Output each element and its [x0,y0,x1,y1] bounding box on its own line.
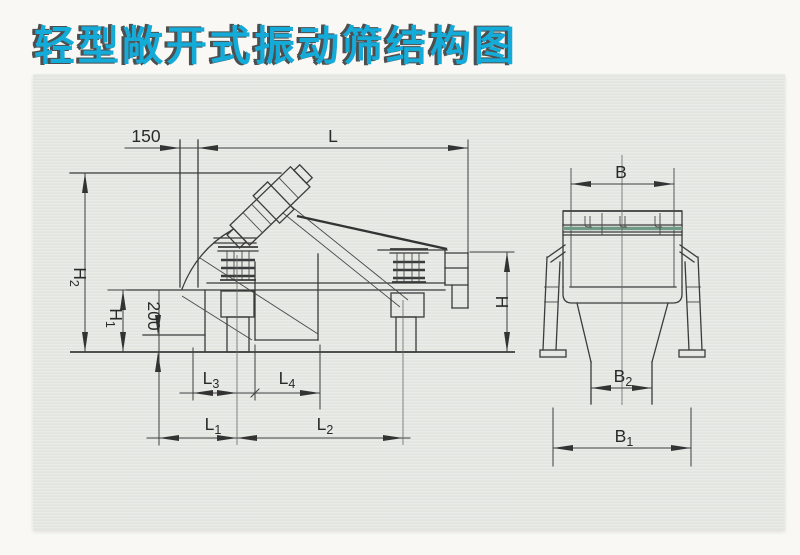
dim-label-B1: B1 [615,426,634,449]
dim-label-150: 150 [131,126,160,146]
dim-label-L4: L4 [279,368,296,391]
dim-label-L1: L1 [205,414,222,437]
side-view-springs [214,238,428,352]
dim-label-L3: L3 [203,368,220,391]
motor-assembly [220,158,319,255]
dimension-labels: 150 L H2 H1 200 H L3 L4 L1 L2 B B2 B1 [67,126,633,449]
side-view-dimensions [82,140,514,445]
dim-label-L: L [328,126,338,146]
dim-label-200: 200 [144,301,164,330]
structure-diagram: 150 L H2 H1 200 H L3 L4 L1 L2 B B2 B1 [0,0,800,555]
dim-label-H: H [492,296,512,309]
page: { "title": { "text": "轻型敞开式振动筛结构图", "col… [0,0,800,555]
side-view-structure [70,140,515,352]
dim-label-L2: L2 [317,414,334,437]
dim-label-B: B [615,162,627,182]
dim-label-B2: B2 [614,366,633,389]
dim-label-H2: H2 [67,267,90,287]
